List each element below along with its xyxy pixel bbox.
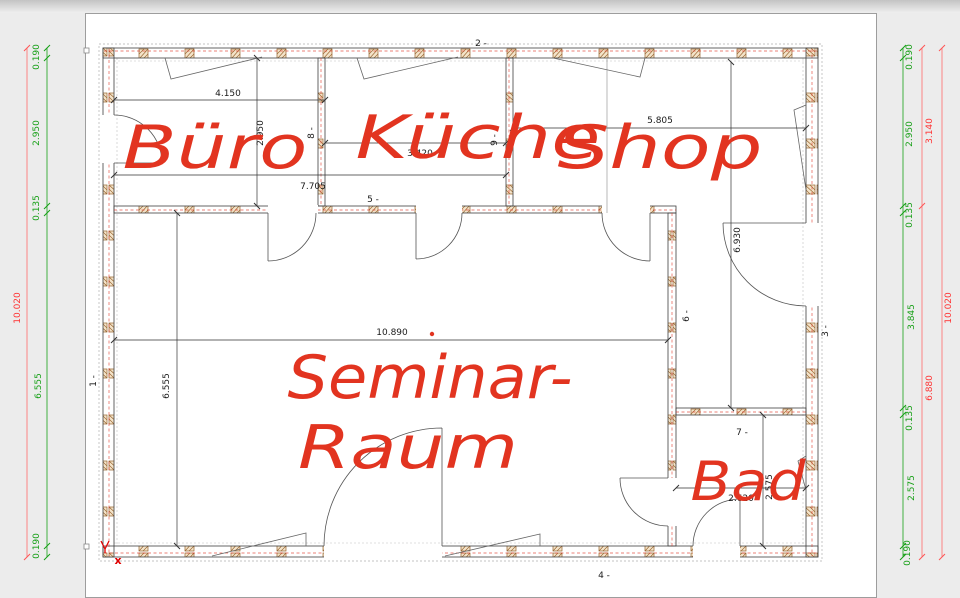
origin-x-label: x xyxy=(114,554,121,567)
right-margin-dims: 0.190 2.950 0.135 3.845 0.135 2.575 0.19… xyxy=(900,44,954,566)
room-label-shop: Shop xyxy=(558,113,763,183)
left-dim-0: 0.190 xyxy=(32,44,42,70)
room-label-bad: Bad xyxy=(691,450,807,513)
right-dim-5: 2.575 xyxy=(907,475,917,501)
door-seminar-2 xyxy=(416,213,462,259)
dim-buero-kueche-width: 7.705 xyxy=(300,182,326,192)
right-dim-red-0: 3.140 xyxy=(925,118,935,144)
wall-label-7: 7 - xyxy=(736,428,748,438)
left-dim-4: 0.190 xyxy=(32,533,42,559)
dim-seminar-width: 10.890 xyxy=(376,328,408,338)
dim-seminar-height: 6.555 xyxy=(162,373,172,399)
room-label-seminar: Seminar- xyxy=(288,343,573,413)
right-dim-3: 3.845 xyxy=(907,304,917,330)
window-buero-top xyxy=(165,57,262,79)
left-dim-total: 10.020 xyxy=(13,292,23,324)
left-margin-dims: 0.190 2.950 0.135 6.555 0.190 10.020 xyxy=(13,44,50,560)
wall-label-1: 1 - xyxy=(89,375,99,387)
selection-handles xyxy=(84,48,89,549)
left-dim-1: 2.950 xyxy=(32,120,42,146)
door-bad xyxy=(620,478,668,526)
right-dim-1: 2.950 xyxy=(905,121,915,147)
left-dim-3: 6.555 xyxy=(34,373,44,399)
room-label-raum: Raum xyxy=(298,413,518,483)
left-dim-2: 0.135 xyxy=(32,195,42,221)
right-dim-2: 0.135 xyxy=(905,202,915,228)
wall-label-4: 4 - xyxy=(598,571,610,581)
right-dim-total: 10.020 xyxy=(944,292,954,324)
room-label-buero: Büro xyxy=(123,113,308,183)
wall-label-5: 5 - xyxy=(367,195,379,205)
wall-label-3: 3 - xyxy=(821,325,831,337)
right-dim-6: 0.190 xyxy=(903,540,913,566)
dim-buero-width: 4.150 xyxy=(215,89,241,99)
window-kueche-top xyxy=(357,57,458,79)
wall-label-8: 8 - xyxy=(307,127,317,139)
dim-shop-height: 6.930 xyxy=(733,227,743,253)
floorplan-canvas[interactable]: 4.150 2.950 7.705 3.420 5.805 6.930 10.8… xyxy=(0,0,960,592)
door-seminar-3 xyxy=(602,213,650,261)
door-seminar-1 xyxy=(268,213,316,261)
window-shop-right xyxy=(794,105,806,190)
right-dim-4: 0.135 xyxy=(905,405,915,431)
wall-label-2: 2 - xyxy=(475,39,487,49)
right-dim-red-1: 6.880 xyxy=(925,375,935,401)
handwriting-dot xyxy=(430,332,434,336)
right-dim-0: 0.190 xyxy=(905,44,915,70)
wall-label-6: 6 - xyxy=(682,310,692,322)
